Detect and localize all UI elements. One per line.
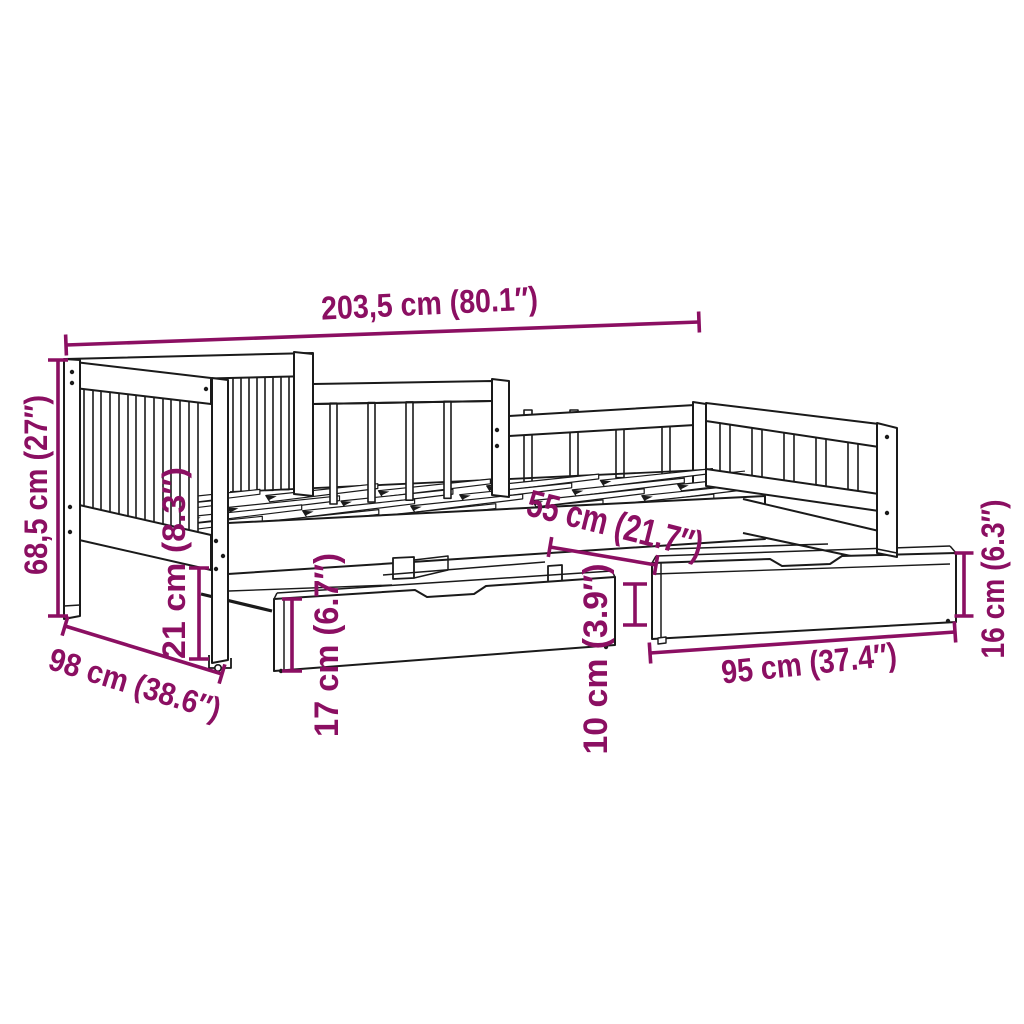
- svg-text:21 cm (8.3″): 21 cm (8.3″): [156, 467, 192, 659]
- svg-text:68,5 cm (27″): 68,5 cm (27″): [18, 395, 54, 575]
- svg-text:10 cm (3.9″): 10 cm (3.9″): [577, 564, 615, 755]
- svg-text:17 cm (6.7″): 17 cm (6.7″): [308, 553, 346, 737]
- svg-text:16 cm (6.3″): 16 cm (6.3″): [975, 500, 1011, 659]
